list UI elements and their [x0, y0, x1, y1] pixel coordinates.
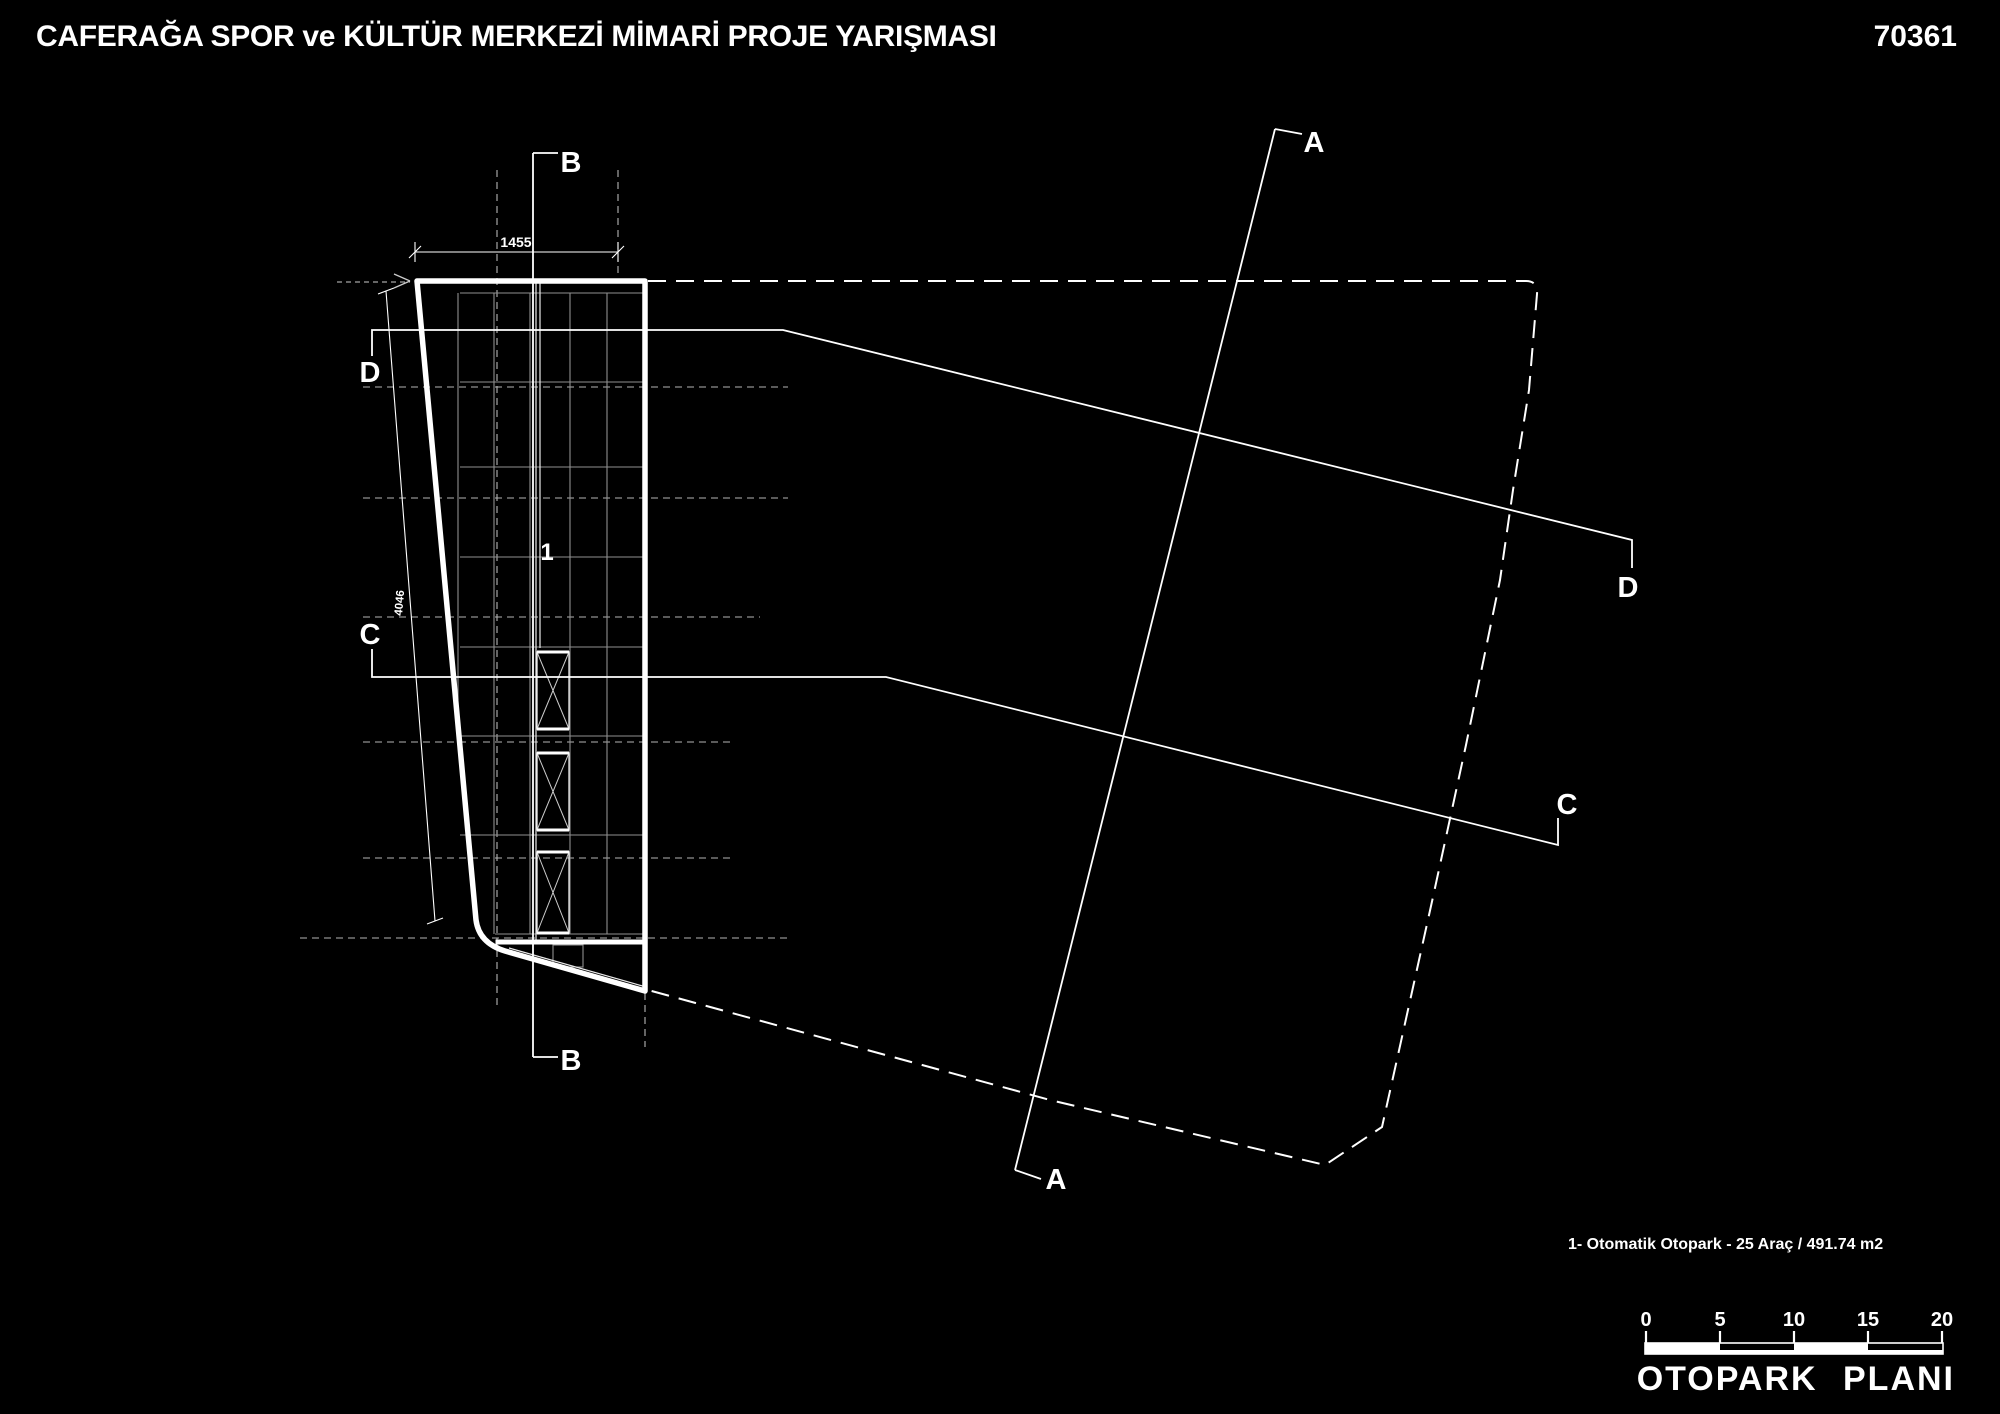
- section-line-d: [372, 330, 1632, 568]
- section-line-a: [1015, 129, 1302, 1179]
- lift-shaft-1: [537, 652, 569, 729]
- section-label-c-right: C: [1557, 789, 1578, 821]
- cell-rows: [460, 293, 644, 934]
- section-label-b-bottom: B: [561, 1045, 582, 1077]
- section-label-b-top: B: [561, 147, 582, 179]
- room-number: 1: [540, 539, 553, 566]
- building-interior-grid: [458, 293, 644, 967]
- lift-shaft-2: [537, 753, 569, 830]
- section-label-d-right: D: [1618, 572, 1639, 604]
- section-d-line: [372, 330, 1632, 568]
- scale-tick-20: 20: [1931, 1309, 1953, 1331]
- scale-tick-10: 10: [1783, 1309, 1805, 1331]
- scale-bar-base-strip: [1645, 1350, 1943, 1354]
- arrow-head-icon: [394, 274, 410, 288]
- site-boundary: [648, 281, 1537, 1165]
- scale-bar-ticks: [1646, 1331, 1942, 1343]
- dimension-left-height-value: 4046: [393, 590, 407, 617]
- lift-shafts: [537, 652, 569, 933]
- drawing-sheet: CAFERAĞA SPOR ve KÜLTÜR MERKEZİ MİMARİ P…: [0, 0, 2000, 1414]
- section-label-a-bottom: A: [1046, 1164, 1067, 1196]
- dimension-top-width: 1455: [409, 234, 624, 262]
- sheet-title: CAFERAĞA SPOR ve KÜLTÜR MERKEZİ MİMARİ P…: [36, 19, 997, 53]
- scale-tick-0: 0: [1640, 1309, 1651, 1331]
- section-a-stubs: [1015, 129, 1302, 1179]
- section-a-line: [1015, 129, 1275, 1170]
- leader-arrow: [337, 274, 410, 288]
- scale-bar: 0 5 10 15 20: [1640, 1309, 1953, 1354]
- lift-shaft-3: [537, 852, 569, 933]
- entry-code: 70361: [1874, 20, 1957, 53]
- drawing-caption: OTOPARK PLANI: [1637, 1360, 1955, 1398]
- section-label-d-left: D: [360, 357, 381, 389]
- section-label-a-top: A: [1304, 127, 1325, 159]
- section-label-c-left: C: [360, 619, 381, 651]
- scale-tick-5: 5: [1714, 1309, 1725, 1331]
- section-c-line: [372, 649, 1558, 845]
- section-line-c: [372, 649, 1558, 845]
- dimension-top-width-value: 1455: [500, 234, 531, 250]
- ramp-edge: [509, 948, 646, 987]
- scale-tick-15: 15: [1857, 1309, 1879, 1331]
- otopark-plan-svg: CAFERAĞA SPOR ve KÜLTÜR MERKEZİ MİMARİ P…: [0, 0, 2000, 1414]
- dimension-left-height: 4046: [378, 288, 443, 924]
- legend-note: 1- Otomatik Otopark - 25 Araç / 491.74 m…: [1568, 1236, 1883, 1253]
